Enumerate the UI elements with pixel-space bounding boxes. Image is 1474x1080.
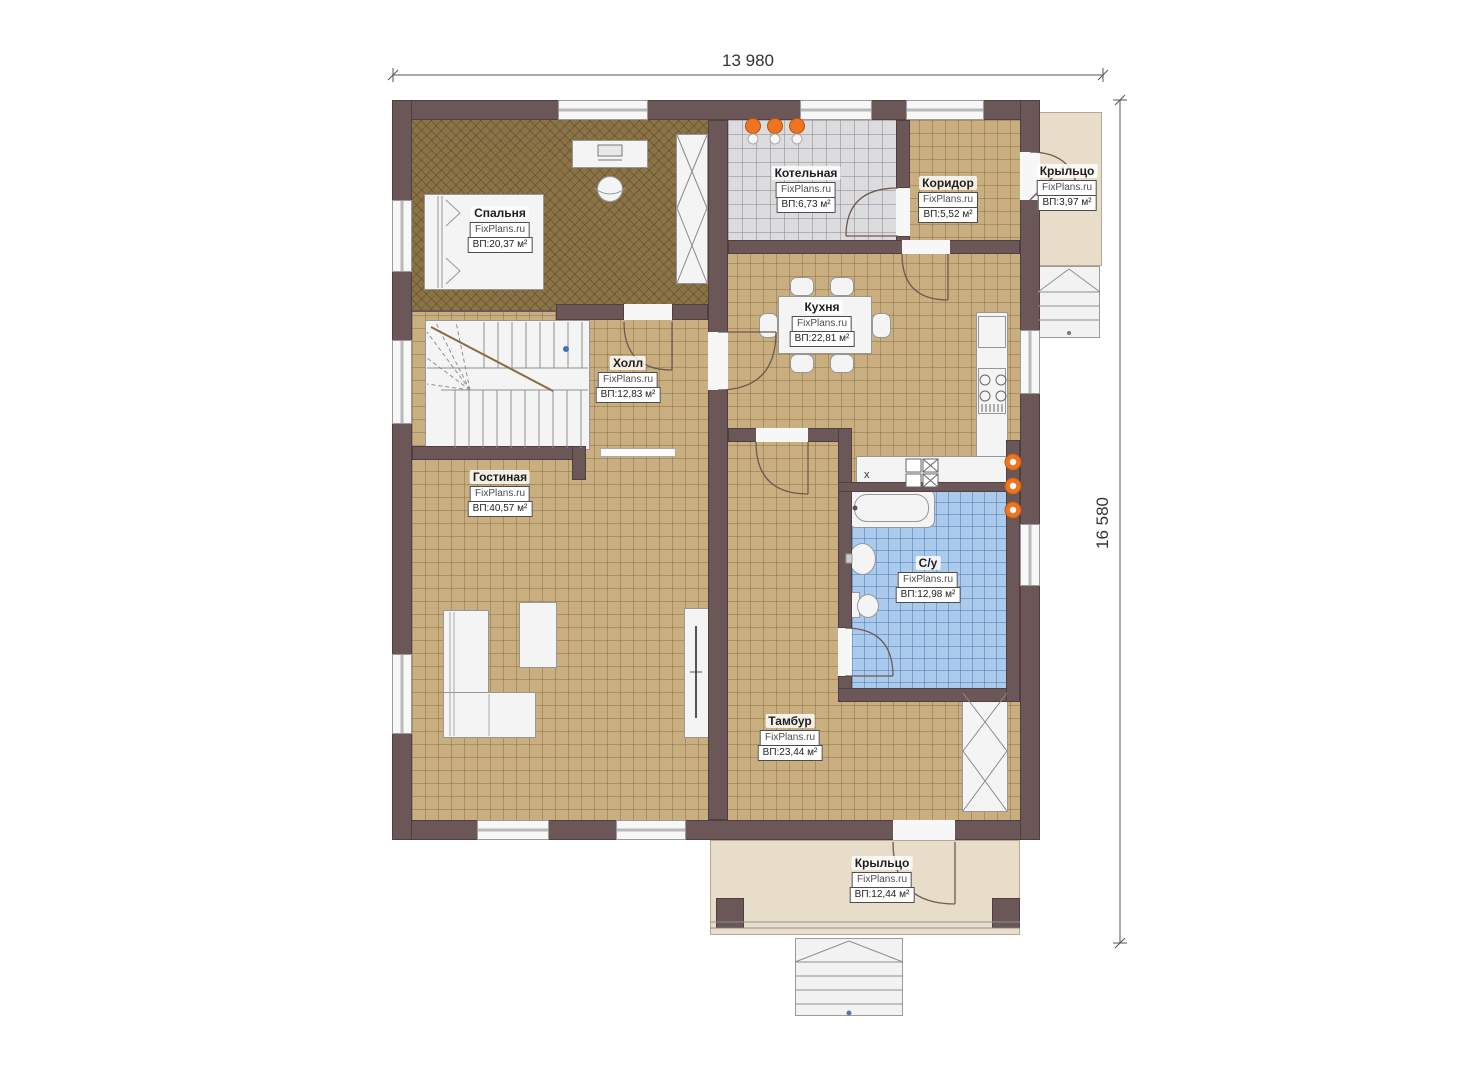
bathtub-inner — [854, 494, 929, 522]
porch-bottom-steps — [795, 938, 903, 1016]
room-name: Гостиная — [470, 470, 530, 484]
room-area: ВП:12,98 м² — [896, 587, 961, 603]
room-label-kitchen: Кухня FixPlans.ru ВП:22,81 м² — [790, 300, 855, 347]
room-area: ВП:12,44 м² — [850, 887, 915, 903]
room-label-corridor: Коридор FixPlans.ru ВП:5,52 м² — [918, 176, 978, 223]
door-opening-corridor-kitchen — [902, 240, 950, 254]
washbasin — [849, 543, 876, 575]
wall-bath-bottom — [838, 688, 1020, 702]
wall-bath-left-a — [838, 428, 852, 628]
wall-main-vertical — [708, 120, 728, 820]
door-opening-front — [893, 820, 955, 840]
wall-bedroom-bottom-b — [672, 304, 708, 320]
room-area: ВП:12,83 м² — [596, 387, 661, 403]
window-bedroom-left — [392, 200, 412, 272]
staircase — [425, 320, 590, 450]
room-name: Кухня — [801, 300, 842, 314]
room-watermark: FixPlans.ru — [792, 316, 852, 332]
room-watermark: FixPlans.ru — [918, 192, 978, 208]
door-opening-boiler — [896, 188, 910, 236]
wall-right-thick — [1006, 440, 1020, 702]
room-label-bathroom: С/у FixPlans.ru ВП:12,98 м² — [896, 556, 961, 603]
porch-post-left — [716, 898, 744, 928]
dining-chair — [790, 354, 814, 373]
window-boiler-top — [800, 100, 872, 120]
wall-boiler-corridor-a — [896, 120, 910, 188]
opening-hall-living — [600, 448, 676, 457]
room-area: ВП:5,52 м² — [918, 207, 977, 223]
room-name: Котельная — [772, 166, 841, 180]
toilet-bowl — [857, 594, 879, 618]
room-label-porch-right: Крыльцо FixPlans.ru ВП:3,97 м² — [1037, 164, 1098, 211]
dining-chair — [830, 354, 854, 373]
room-name: Спальня — [471, 206, 529, 220]
room-label-hall: Холл FixPlans.ru ВП:12,83 м² — [596, 356, 661, 403]
stove — [978, 368, 1006, 414]
porch-right-steps — [1038, 266, 1100, 338]
porch-post-right — [992, 898, 1020, 928]
dimension-height-label: 16 580 — [1093, 497, 1112, 549]
room-watermark: FixPlans.ru — [776, 182, 836, 198]
floor-plan: 13 980 16 580 — [0, 0, 1474, 1080]
wall-under-boiler-corridor — [728, 240, 1020, 254]
room-label-living: Гостиная FixPlans.ru ВП:40,57 м² — [468, 470, 533, 517]
closet — [962, 692, 1008, 812]
tv-unit — [684, 608, 709, 738]
room-watermark: FixPlans.ru — [760, 730, 820, 746]
door-opening-hall-kitchen — [708, 332, 728, 390]
wall-bedroom-bottom-a — [556, 304, 624, 320]
wall-outer-right — [1020, 100, 1040, 840]
window-kitchen-right — [1020, 330, 1040, 394]
window-living-left — [392, 654, 412, 734]
door-opening-bathroom — [838, 628, 852, 676]
dining-chair — [759, 313, 778, 338]
room-name: Тамбур — [765, 714, 815, 728]
wall-hall-bottom — [412, 446, 584, 460]
room-label-boiler: Котельная FixPlans.ru ВП:6,73 м² — [772, 166, 841, 213]
window-living-bottom-1 — [477, 820, 549, 840]
room-area: ВП:23,44 м² — [758, 745, 823, 761]
room-watermark: FixPlans.ru — [852, 872, 912, 888]
room-watermark: FixPlans.ru — [898, 572, 958, 588]
window-living-bottom-2 — [616, 820, 686, 840]
window-bath-right — [1020, 524, 1040, 586]
door-opening-bedroom — [624, 304, 672, 320]
dimension-width-label: 13 980 — [722, 51, 774, 70]
wall-bath-top — [838, 482, 1008, 492]
room-name: С/у — [916, 556, 941, 570]
fridge — [978, 316, 1006, 348]
desk — [572, 140, 648, 168]
dining-chair — [830, 277, 854, 296]
window-corridor-top — [906, 100, 984, 120]
room-watermark: FixPlans.ru — [470, 222, 530, 238]
room-area: ВП:6,73 м² — [776, 197, 835, 213]
room-name: Крыльцо — [1037, 164, 1098, 178]
opening-vestibule-top — [756, 428, 808, 442]
room-label-bedroom: Спальня FixPlans.ru ВП:20,37 м² — [468, 206, 533, 253]
room-area: ВП:40,57 м² — [468, 501, 533, 517]
wall-hall-stub — [572, 446, 586, 480]
room-name: Коридор — [919, 176, 977, 190]
room-watermark: FixPlans.ru — [598, 372, 658, 388]
window-stairs-left — [392, 340, 412, 424]
coffee-table — [519, 602, 557, 668]
room-watermark: FixPlans.ru — [470, 486, 530, 502]
dining-chair — [872, 313, 891, 338]
room-area: ВП:3,97 м² — [1037, 195, 1096, 211]
room-name: Холл — [610, 356, 646, 370]
room-name: Крыльцо — [852, 856, 913, 870]
window-bedroom-top — [558, 100, 648, 120]
dining-chair — [790, 277, 814, 296]
desk-chair — [597, 176, 623, 202]
room-label-vestibule: Тамбур FixPlans.ru ВП:23,44 м² — [758, 714, 823, 761]
wardrobe — [676, 134, 708, 284]
room-area: ВП:22,81 м² — [790, 331, 855, 347]
room-area: ВП:20,37 м² — [468, 237, 533, 253]
room-watermark: FixPlans.ru — [1037, 180, 1097, 196]
sofa-horizontal — [443, 692, 536, 738]
room-label-porch-bottom: Крыльцо FixPlans.ru ВП:12,44 м² — [850, 856, 915, 903]
